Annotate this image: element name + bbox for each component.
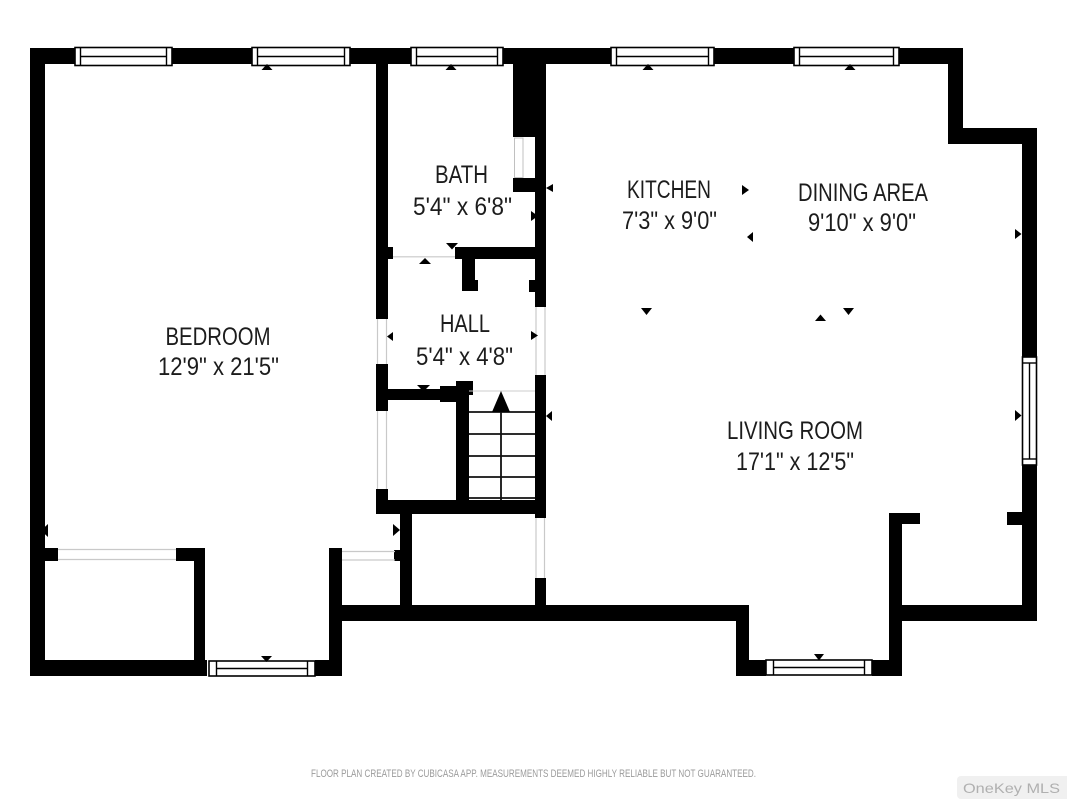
- svg-text:5'4" x 6'8": 5'4" x 6'8": [413, 193, 512, 221]
- svg-text:9'10" x 9'0": 9'10" x 9'0": [808, 209, 916, 237]
- svg-text:7'3" x 9'0": 7'3" x 9'0": [622, 207, 717, 235]
- svg-text:OneKey MLS: OneKey MLS: [963, 780, 1060, 796]
- svg-text:BEDROOM: BEDROOM: [166, 323, 271, 351]
- svg-text:12'9" x 21'5": 12'9" x 21'5": [158, 353, 279, 381]
- svg-text:17'1" x 12'5": 17'1" x 12'5": [736, 448, 854, 476]
- svg-text:LIVING ROOM: LIVING ROOM: [727, 417, 863, 445]
- svg-text:DINING AREA: DINING AREA: [798, 179, 928, 207]
- svg-text:KITCHEN: KITCHEN: [627, 176, 711, 204]
- svg-text:5'4" x 4'8": 5'4" x 4'8": [416, 343, 513, 371]
- svg-text:FLOOR PLAN CREATED BY CUBICASA: FLOOR PLAN CREATED BY CUBICASA APP. MEAS…: [311, 768, 756, 780]
- svg-text:HALL: HALL: [440, 310, 490, 338]
- svg-text:BATH: BATH: [435, 161, 488, 189]
